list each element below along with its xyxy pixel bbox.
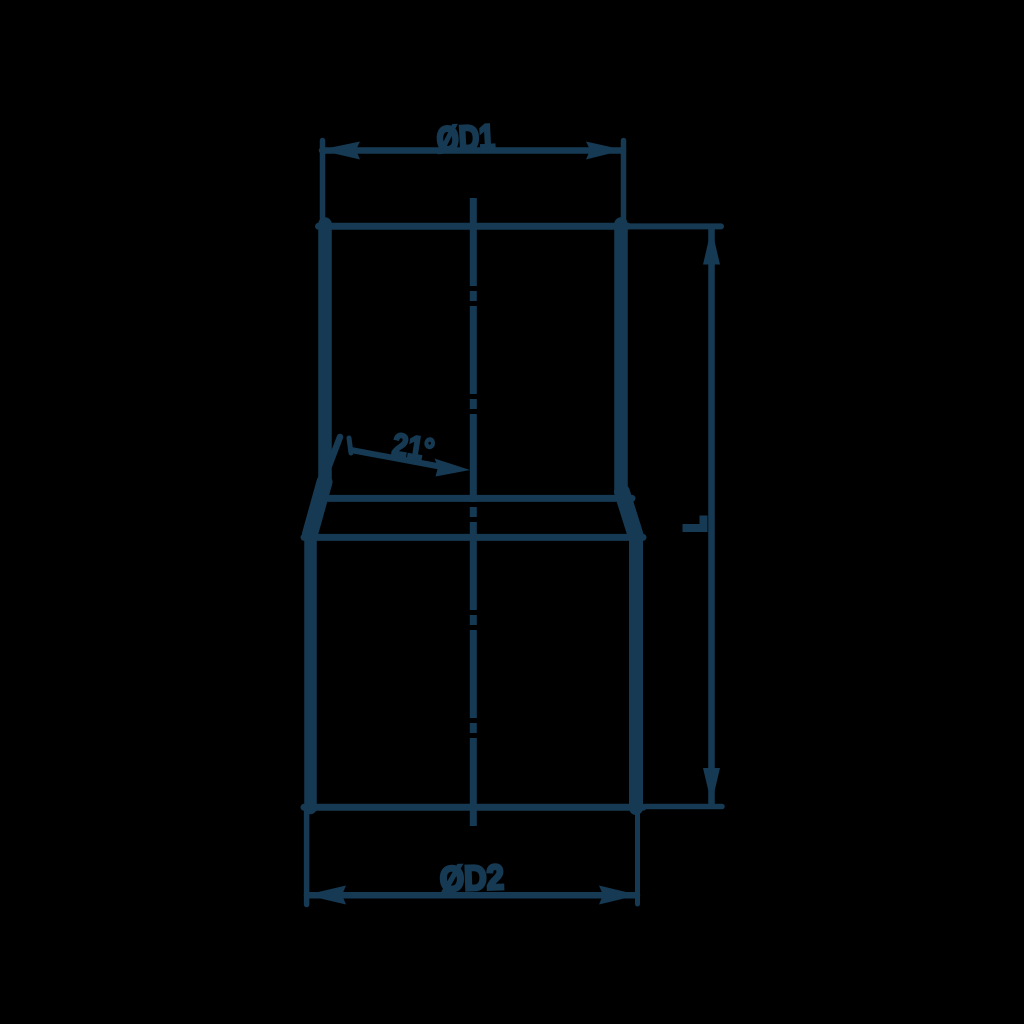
svg-text:21°: 21° [390,426,437,468]
svg-text:ØD1: ØD1 [436,118,496,160]
svg-text:ØD2: ØD2 [439,858,504,899]
